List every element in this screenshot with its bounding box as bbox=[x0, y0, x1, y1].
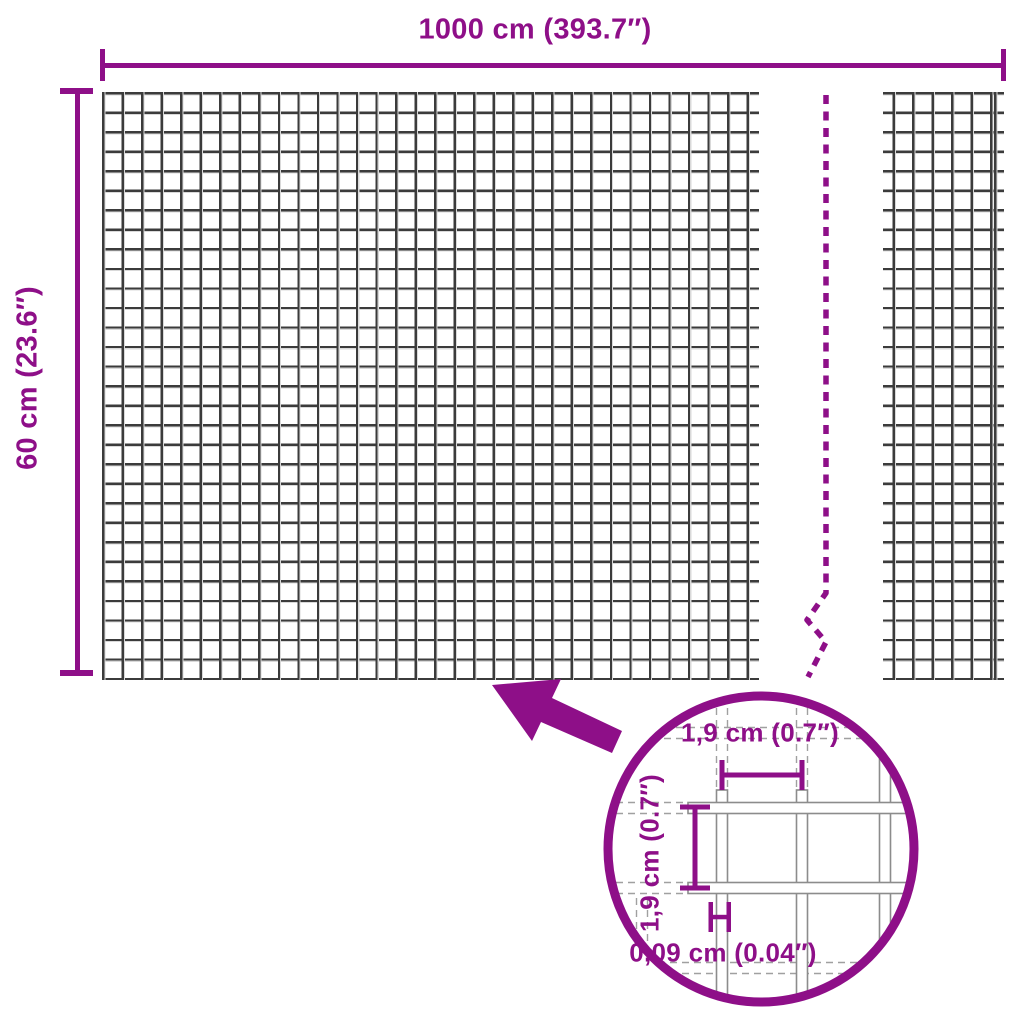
mesh-break-line bbox=[807, 95, 826, 677]
detail-wire-vertical bbox=[717, 790, 728, 1012]
detail-wire-vertical bbox=[880, 745, 891, 1012]
top-dimension-label: 1000 cm (393.7″) bbox=[418, 14, 651, 47]
detail-wire-vertical bbox=[797, 790, 808, 1012]
detail-width-dimension-line bbox=[722, 773, 802, 778]
detail-width-dimension-tick bbox=[800, 760, 805, 790]
detail-wire-horizontal bbox=[688, 883, 926, 894]
wire-thickness-mark bbox=[709, 915, 732, 920]
detail-height-dimension-line bbox=[693, 807, 698, 888]
detail-mesh-height-label: 1,9 cm (0.7″) bbox=[635, 774, 666, 932]
diagram-stage: 1000 cm (393.7″) 60 cm (23.6″) bbox=[0, 0, 1024, 1024]
left-dimension-label: 60 cm (23.6″) bbox=[12, 286, 45, 470]
detail-wire-thickness-label: 0,09 cm (0.04″) bbox=[629, 938, 817, 969]
zoom-arrow-icon bbox=[492, 679, 622, 753]
diagram-overlay bbox=[0, 0, 1024, 1024]
detail-height-dimension-tick bbox=[680, 886, 710, 891]
detail-wire-horizontal bbox=[688, 803, 926, 814]
detail-width-dimension-tick bbox=[720, 760, 725, 790]
detail-mesh-width-label: 1,9 cm (0.7″) bbox=[681, 718, 839, 749]
detail-height-dimension-tick bbox=[680, 805, 710, 810]
